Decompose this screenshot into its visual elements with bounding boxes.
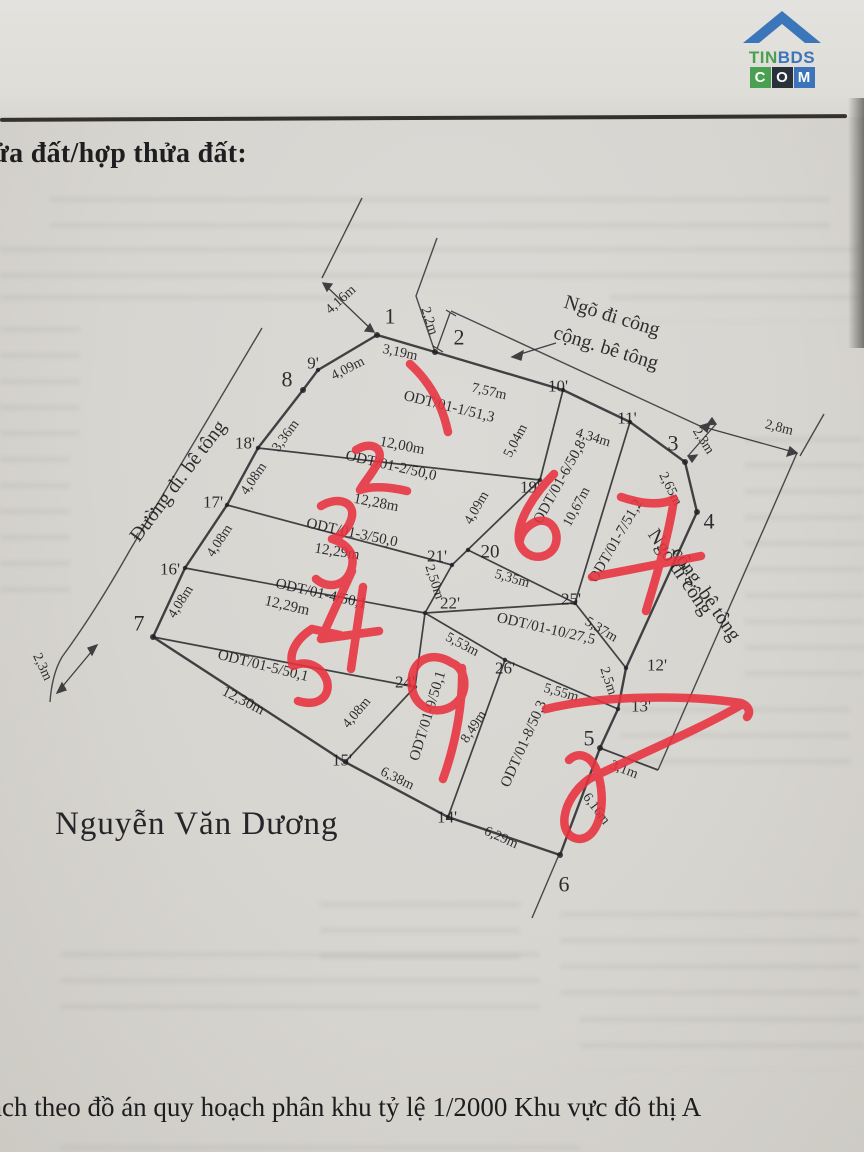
measurement-label: 4,08m [340, 695, 374, 732]
measurement-label: 6,29m [482, 824, 521, 852]
vertex-label: 6 [559, 872, 570, 897]
footer-text: ạch theo đồ án quy hoạch phân khu tỷ lệ … [0, 1092, 701, 1123]
measurement-label: 5,04m [501, 422, 531, 460]
measurement-label: 2,50m [421, 563, 446, 601]
measurement-label: 5,35m [493, 567, 531, 591]
measurement-label: 7,57m [470, 381, 508, 404]
plot-label: ODT/01-8/50,3 [498, 698, 550, 789]
vertex-label: 17' [203, 493, 223, 512]
vertex-label: 12' [647, 656, 667, 675]
plot-label: ODT/01-10/27,5 [495, 610, 596, 648]
vertex-label: 10' [548, 377, 568, 396]
vertex-label: 20 [481, 542, 500, 563]
vertex-label: 8 [282, 367, 293, 392]
vertex-label: 4 [704, 509, 715, 534]
plot-divider-lines [153, 390, 630, 817]
measurement-label: 2,2m [417, 305, 440, 337]
vertex-label: 26' [495, 659, 515, 678]
measurement-label: 3,36m [270, 417, 303, 455]
vertex-label: 18' [235, 434, 255, 453]
cadastral-sketch: 123456789'10'11'12'13'14'15'16'17'18'19'… [0, 0, 864, 1152]
measurement-label: 2,5m [596, 665, 619, 697]
parcel-outer-boundary [153, 335, 697, 855]
vertex-label: 14' [437, 808, 457, 827]
measurement-label: 12,00m [378, 434, 426, 458]
vertex-label: 9' [307, 354, 319, 373]
diagram-labels-layer: 123456789'10'11'12'13'14'15'16'17'18'19'… [29, 283, 794, 897]
boundary-lines [153, 335, 697, 855]
vertex-label: 11' [617, 409, 636, 428]
red-digit-8 [589, 705, 741, 779]
measurement-label: 2,3m [29, 651, 55, 683]
red-digit-5 [312, 629, 340, 635]
measurement-label: 12,30m [219, 684, 267, 719]
vertex-label: 7 [134, 611, 145, 636]
owner-name: Nguyễn Văn Dương [55, 806, 339, 843]
vertex-label: 1 [385, 304, 396, 329]
measurement-label: 4,08m [204, 522, 236, 560]
road-label: Đường đi. bê tông [125, 416, 230, 546]
vertex-label: 16' [160, 560, 180, 579]
measurement-label: 4,08m [238, 460, 270, 498]
vertex-label: 5 [584, 726, 595, 751]
measurement-label: 2,8m [763, 417, 794, 438]
vertex-label: 3 [668, 431, 679, 456]
scanned-land-document: TINBDS C O M ửa đất/hợp thửa đất: [0, 0, 864, 1152]
measurement-label: 12,28m [352, 491, 400, 515]
vertex-label: 15' [332, 751, 352, 770]
vertex-label: 2 [454, 325, 465, 350]
measurement-label: 4,09m [329, 354, 367, 383]
measurement-label: 10,67m [560, 485, 593, 530]
vertex-label: 25' [561, 590, 581, 609]
vertex-label: 21' [427, 547, 447, 566]
measurement-label: 4,09m [462, 489, 493, 527]
